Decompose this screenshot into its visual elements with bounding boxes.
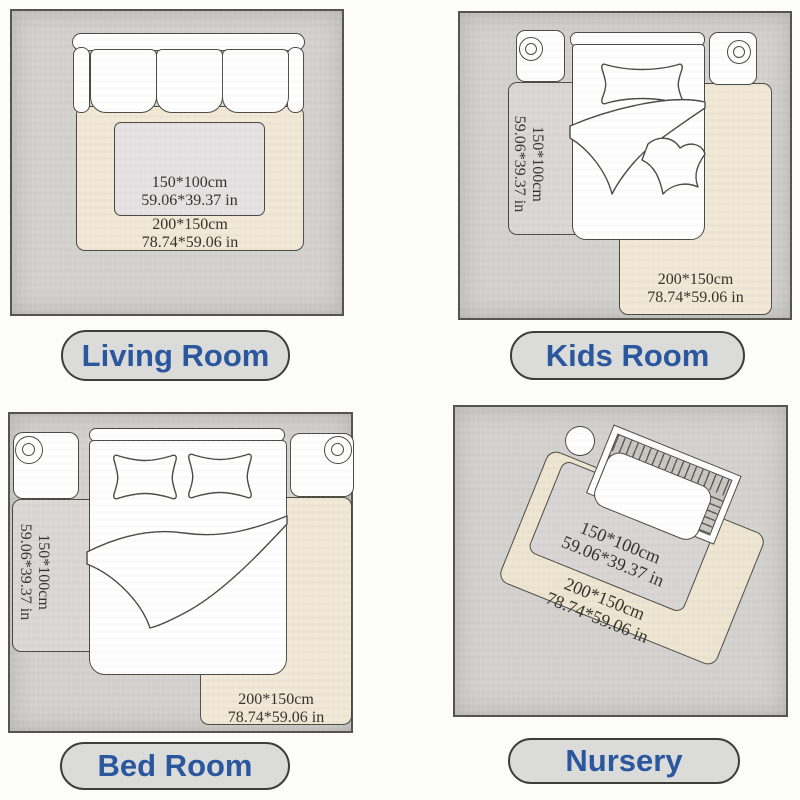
size-cm: 150*100cm: [528, 116, 546, 212]
rug-small-size-label: 150*100cm 59.06*39.37 in: [533, 502, 701, 601]
size-cm: 150*100cm: [114, 174, 265, 192]
size-cm: 200*150cm: [619, 271, 772, 289]
duvet-fold: [570, 100, 705, 194]
crib-rail-band-bottom: [605, 482, 693, 526]
lamp-icon: [324, 436, 352, 464]
bed: [572, 44, 705, 240]
nightstand-left: [516, 30, 565, 82]
nursery-floor: 200*150cm 78.74*59.06 in 150*100cm 59.06…: [453, 405, 788, 717]
rug-small-size-label: 150*100cm 59.06*39.37 in: [16, 524, 52, 620]
size-cm: 150*100cm: [540, 502, 700, 582]
bed-room-floor: 150*100cm 59.06*39.37 in 200*150cm 78.74…: [8, 412, 353, 733]
pillow: [114, 455, 177, 499]
lamp-core: [733, 46, 745, 58]
bed-bedding: [572, 44, 705, 240]
lamp-core: [331, 443, 344, 456]
sofa-armrest-right: [287, 47, 304, 113]
sofa-cushion: [90, 49, 157, 113]
size-inch: 78.74*59.06 in: [619, 289, 772, 307]
crib-rail-band-top: [612, 435, 731, 496]
blanket: [642, 138, 705, 194]
bed-headboard: [89, 428, 285, 442]
size-cm: 200*150cm: [200, 691, 352, 709]
size-inch: 78.74*59.06 in: [486, 565, 709, 670]
size-inch: 59.06*39.37 in: [16, 524, 34, 620]
room-label-living-room: Living Room: [61, 330, 290, 381]
sofa-backrest: [72, 33, 305, 51]
sofa-armrest-left: [73, 47, 90, 113]
rug-large: [76, 106, 304, 251]
rug-large: [200, 497, 352, 725]
rug-small: [508, 82, 618, 235]
rug-large-size-label: 200*150cm 78.74*59.06 in: [619, 271, 772, 307]
rug-small-size-label: 150*100cm 59.06*39.37 in: [510, 116, 546, 212]
rug-large-size-label: 200*150cm 78.74*59.06 in: [200, 691, 352, 727]
room-label-bed-room: Bed Room: [60, 742, 290, 790]
lamp-icon: [727, 40, 751, 64]
size-inch: 59.06*39.37 in: [533, 521, 693, 601]
rug-small: 150*100cm 59.06*39.37 in: [527, 459, 719, 613]
bed-headboard: [570, 32, 705, 47]
room-label-text: Living Room: [82, 338, 270, 374]
rug-small-size-label: 150*100cm 59.06*39.37 in: [114, 174, 265, 210]
rug-small: [114, 122, 265, 216]
toy-ball: [561, 421, 600, 460]
room-label-text: Kids Room: [546, 338, 710, 374]
room-label-text: Nursery: [565, 743, 682, 779]
rug-size-guide: 150*100cm 59.06*39.37 in 200*150cm 78.74…: [0, 0, 800, 800]
duvet-fold: [87, 516, 287, 628]
lamp-icon: [519, 37, 543, 61]
nightstand-right: [290, 433, 354, 497]
pillow: [189, 454, 252, 498]
living-room-floor: 150*100cm 59.06*39.37 in 200*150cm 78.74…: [10, 9, 344, 316]
nightstand-right: [709, 32, 757, 85]
bed: [89, 440, 287, 675]
size-cm: 150*100cm: [34, 524, 52, 620]
crib-mattress: [590, 448, 716, 544]
lamp-core: [525, 43, 537, 55]
crib: [586, 424, 742, 544]
room-label-kids-room: Kids Room: [510, 331, 745, 380]
rug-large: [619, 83, 772, 315]
size-inch: 59.06*39.37 in: [510, 116, 528, 212]
lamp-icon: [15, 436, 43, 464]
size-inch: 59.06*39.37 in: [114, 192, 265, 210]
kids-room-floor: 150*100cm 59.06*39.37 in 200*150cm 78.74…: [458, 11, 792, 320]
room-label-text: Bed Room: [98, 748, 253, 784]
room-label-nursery: Nursery: [508, 738, 740, 784]
pillow: [602, 64, 683, 104]
bed-bedding: [89, 440, 287, 675]
nightstand-left: [13, 432, 79, 499]
crib-rail-band-left: [596, 451, 620, 492]
rug-large-size-label: 200*150cm 78.74*59.06 in: [76, 216, 304, 252]
size-cm: 200*150cm: [76, 216, 304, 234]
size-inch: 78.74*59.06 in: [200, 709, 352, 727]
rug-large: 200*150cm 78.74*59.06 in: [497, 448, 767, 667]
rug-large-size-label: 200*150cm 78.74*59.06 in: [486, 546, 716, 670]
sofa-cushion: [156, 49, 223, 113]
crib-rail-band-right: [689, 488, 725, 534]
size-inch: 78.74*59.06 in: [76, 234, 304, 252]
size-cm: 200*150cm: [493, 546, 716, 651]
sofa-cushion: [222, 49, 289, 113]
crib-rails: [595, 434, 732, 536]
rug-small: [12, 499, 162, 652]
lamp-core: [22, 443, 35, 456]
